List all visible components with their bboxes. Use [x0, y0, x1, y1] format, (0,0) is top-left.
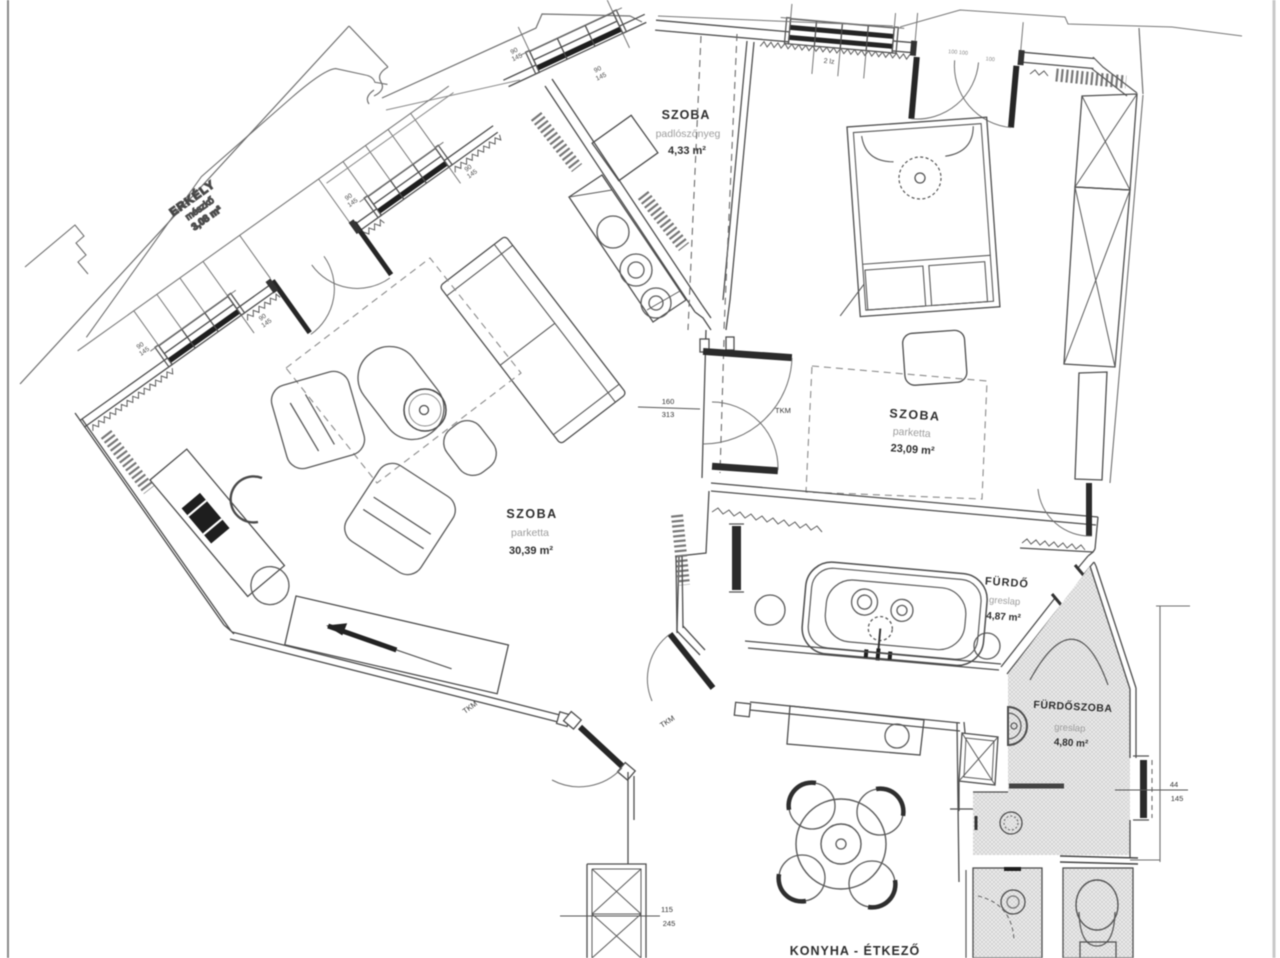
svg-text:4,80 m²: 4,80 m²	[1054, 737, 1090, 750]
svg-text:145: 145	[1171, 794, 1184, 803]
svg-text:greslap: greslap	[989, 595, 1021, 608]
svg-text:parketta: parketta	[511, 527, 549, 539]
svg-text:KONYHA - ÉTKEZŐ: KONYHA - ÉTKEZŐ	[790, 943, 921, 958]
svg-text:SZOBA: SZOBA	[506, 507, 557, 521]
svg-text:TKM: TKM	[775, 406, 791, 415]
svg-text:100: 100	[985, 56, 995, 63]
svg-text:SZOBA: SZOBA	[662, 108, 711, 122]
svg-text:padlószőnyeg: padlószőnyeg	[656, 128, 721, 140]
svg-text:4,33 m²: 4,33 m²	[668, 145, 706, 157]
svg-text:115: 115	[661, 905, 673, 914]
svg-text:160: 160	[662, 397, 675, 406]
svg-text:245: 245	[663, 919, 676, 928]
svg-text:greslap: greslap	[1054, 722, 1086, 735]
svg-text:30,39 m²: 30,39 m²	[509, 545, 553, 557]
svg-text:44: 44	[1170, 780, 1178, 789]
svg-text:313: 313	[662, 410, 675, 419]
svg-text:2 lz: 2 lz	[823, 58, 835, 66]
